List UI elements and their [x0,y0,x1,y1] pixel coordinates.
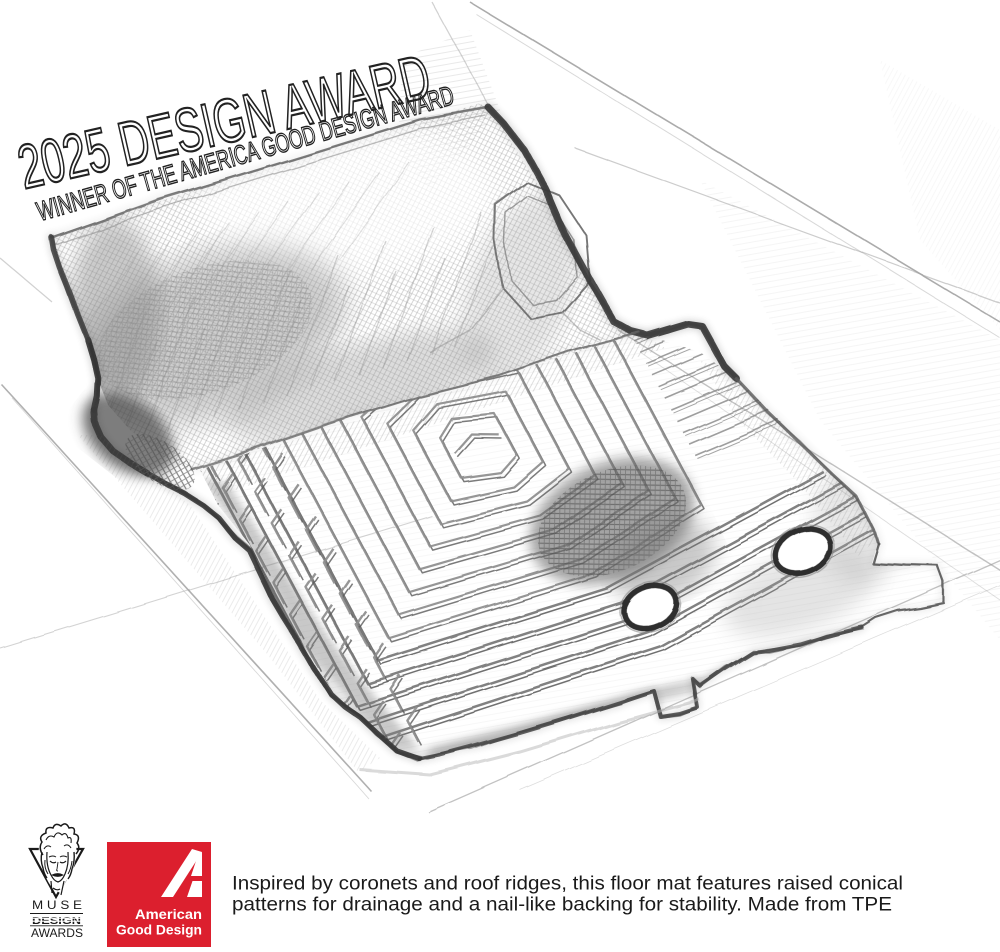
svg-text:patterns for drainage and a na: patterns for drainage and a nail-like ba… [232,894,892,916]
svg-text:Good Design: Good Design [116,923,202,938]
svg-text:M U S E: M U S E [32,900,82,912]
svg-text:American: American [135,907,202,922]
svg-text:AWARDS: AWARDS [31,928,83,940]
svg-text:Inspired by coronets and roof: Inspired by coronets and roof ridges, th… [232,873,903,895]
